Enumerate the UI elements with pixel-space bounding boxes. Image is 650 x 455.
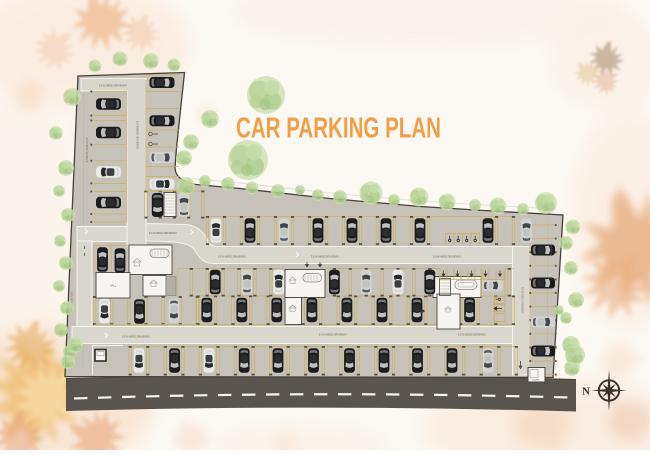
svg-text:9.0 M WIDE DRIVEWAY: 9.0 M WIDE DRIVEWAY	[433, 254, 462, 258]
svg-text:9.0 M WIDE DRIVEWAY: 9.0 M WIDE DRIVEWAY	[149, 231, 178, 235]
svg-text:9.0 M WIDE DRIVEWAY: 9.0 M WIDE DRIVEWAY	[319, 332, 348, 336]
svg-text:CAR PARKING PLAN: CAR PARKING PLAN	[236, 113, 441, 145]
svg-text:9.0 M WIDE DRIVEWAY: 9.0 M WIDE DRIVEWAY	[458, 332, 487, 336]
svg-text:9.0 M WIDE DRIVEWAY: 9.0 M WIDE DRIVEWAY	[311, 254, 340, 258]
svg-text:3.0 M WIDE SETBACK: 3.0 M WIDE SETBACK	[85, 138, 88, 163]
svg-text:GUARD: GUARD	[532, 379, 540, 382]
svg-text:3.0 M WIDE SETBACK: 3.0 M WIDE SETBACK	[109, 74, 132, 77]
svg-text:N: N	[582, 386, 590, 398]
svg-text:SETBACK: SETBACK	[550, 245, 553, 256]
svg-text:9.0 M WIDE DRIVEWAY: 9.0 M WIDE DRIVEWAY	[521, 287, 524, 313]
svg-text:9.0 M WIDE DRIVEWAY: 9.0 M WIDE DRIVEWAY	[122, 334, 151, 338]
svg-text:9.0 M WIDE DRIVEWAY: 9.0 M WIDE DRIVEWAY	[136, 121, 140, 150]
svg-text:HALL: HALL	[110, 284, 117, 288]
svg-text:9.0 M WIDE DRIVEWAY: 9.0 M WIDE DRIVEWAY	[218, 254, 247, 258]
svg-text:9.0 M WIDE DRIVEWAY: 9.0 M WIDE DRIVEWAY	[99, 83, 128, 87]
